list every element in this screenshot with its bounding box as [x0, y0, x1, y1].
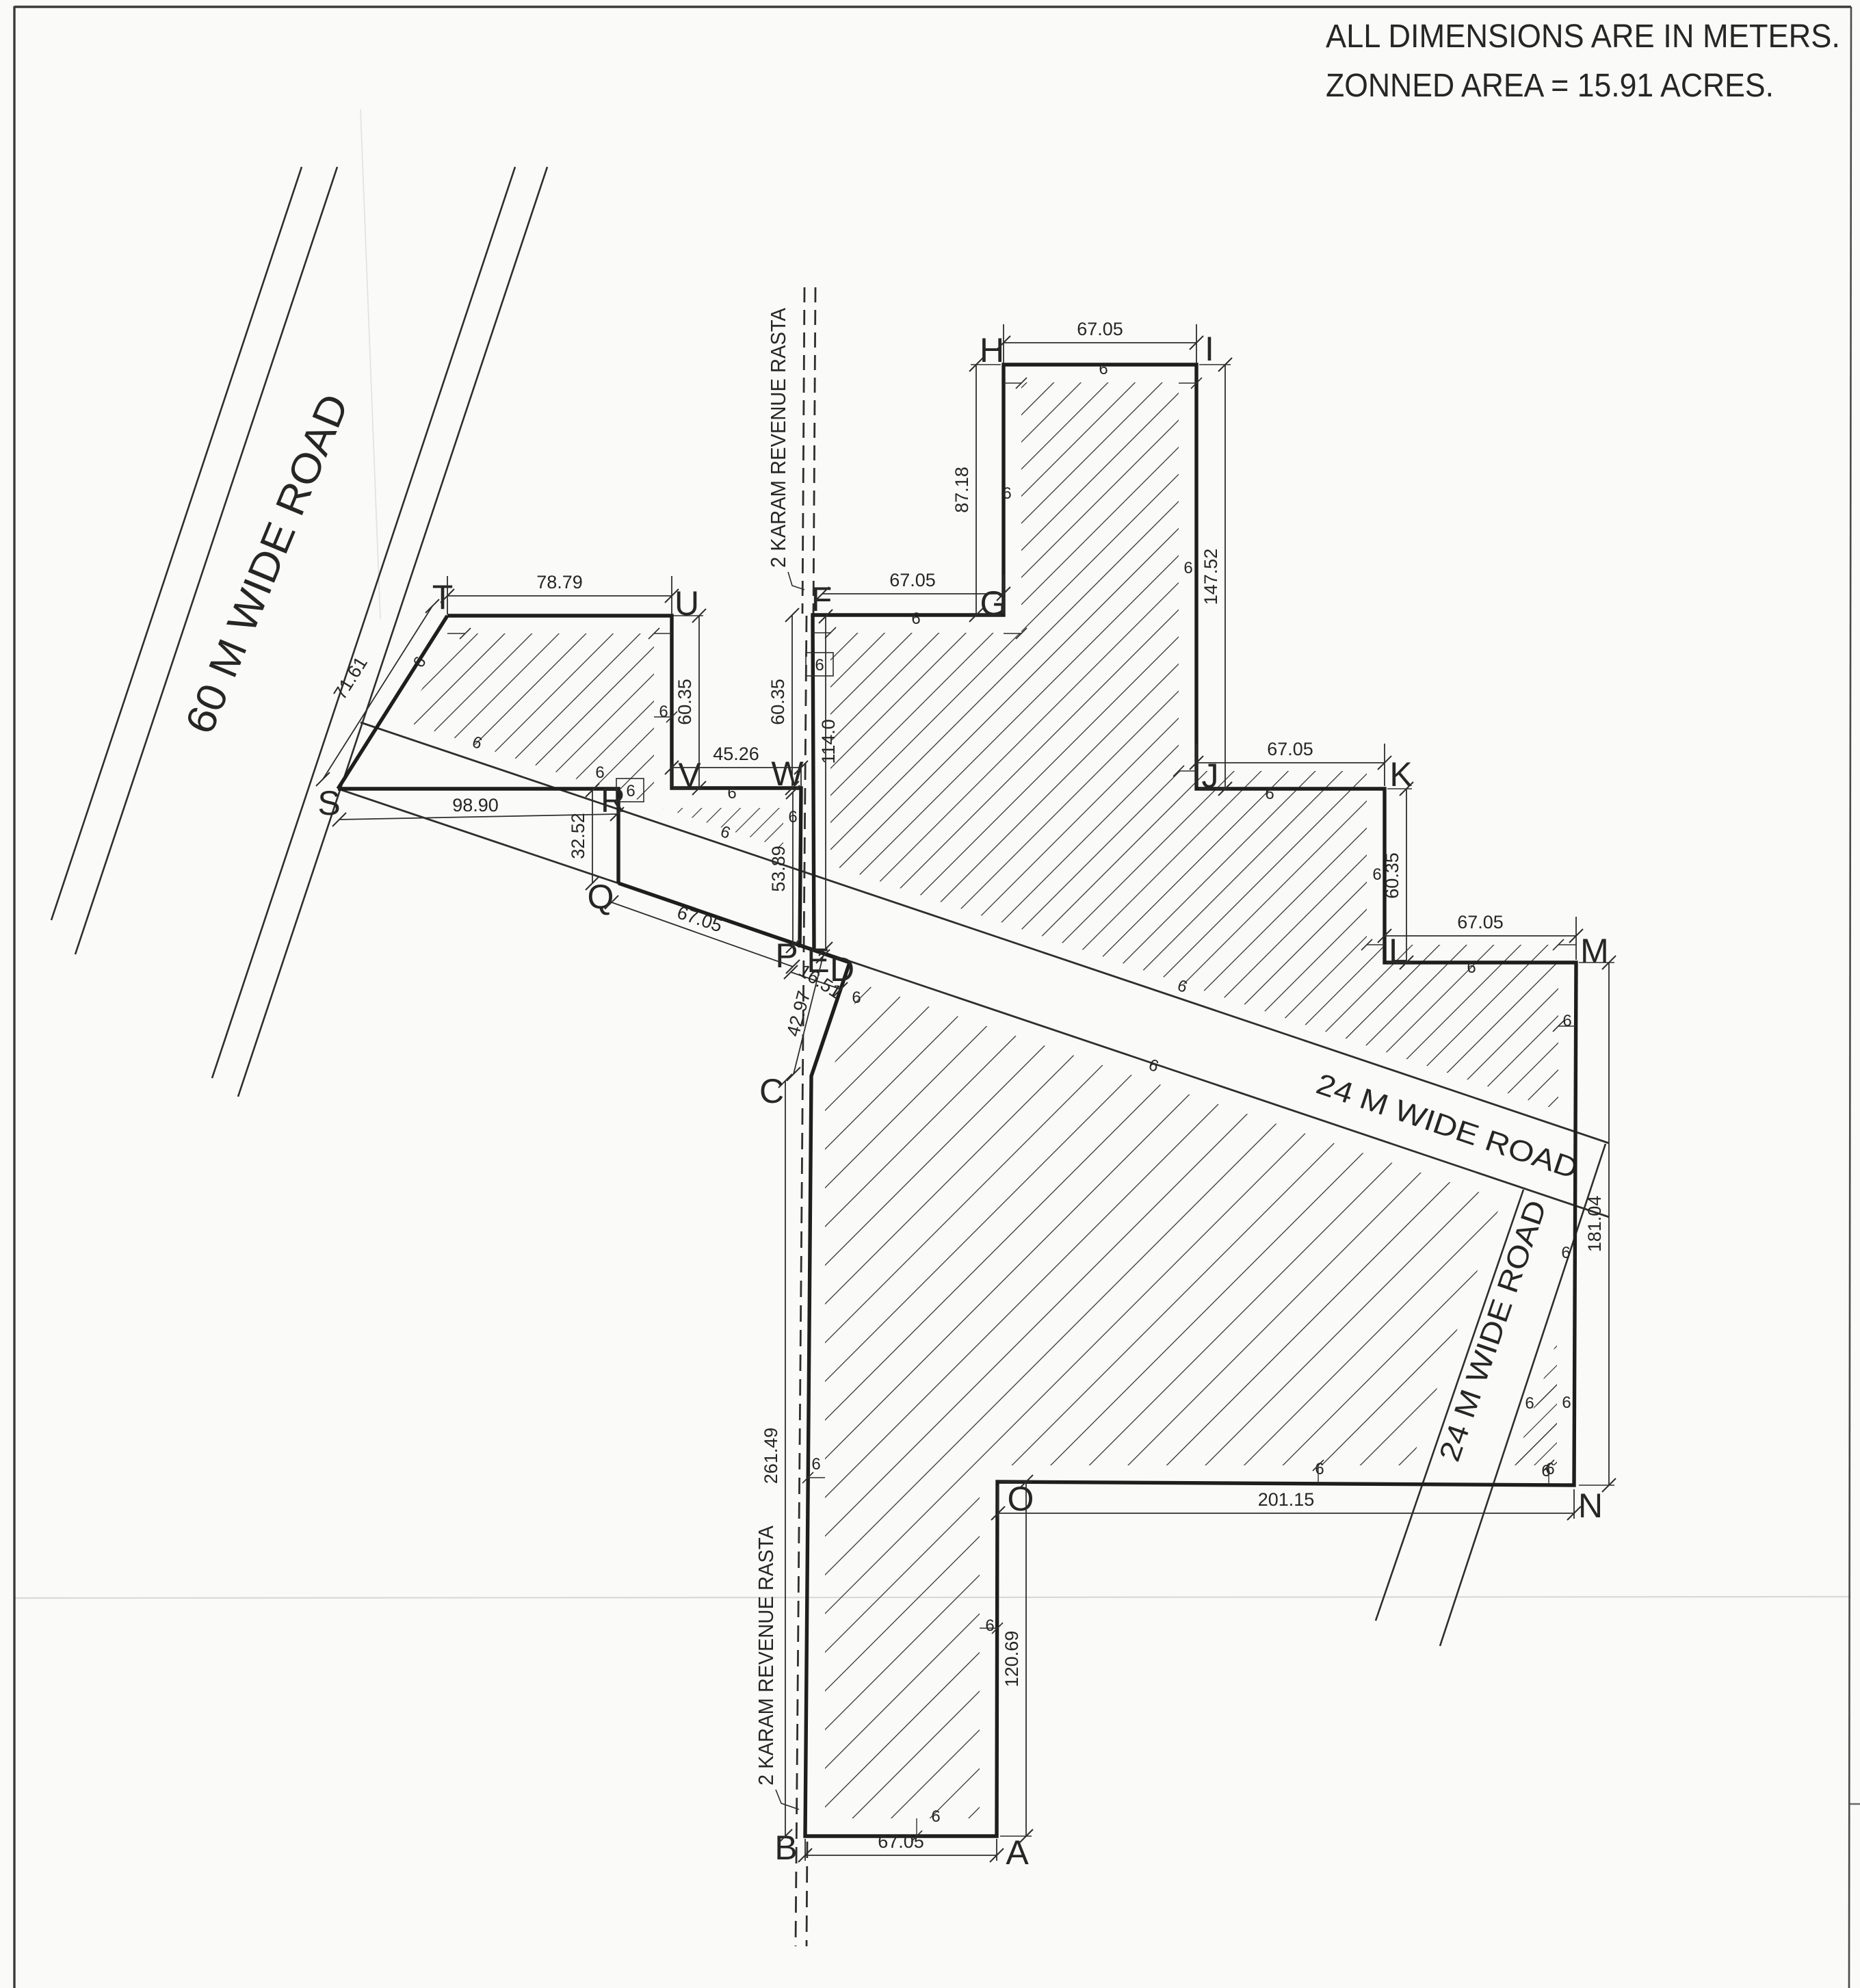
- svg-text:60.35: 60.35: [1382, 852, 1402, 899]
- svg-text:N: N: [1578, 1487, 1603, 1525]
- svg-text:T: T: [432, 578, 454, 616]
- svg-text:201.15: 201.15: [1258, 1489, 1315, 1510]
- svg-text:O: O: [1008, 1480, 1034, 1518]
- svg-text:6: 6: [1467, 958, 1476, 977]
- svg-text:6: 6: [1545, 1460, 1554, 1478]
- svg-text:I: I: [1205, 330, 1214, 368]
- svg-text:6: 6: [815, 656, 824, 675]
- svg-text:67.05: 67.05: [889, 570, 936, 590]
- svg-text:6: 6: [931, 1807, 940, 1826]
- svg-text:6: 6: [1099, 360, 1108, 378]
- svg-text:6: 6: [852, 989, 861, 1007]
- svg-text:A: A: [1006, 1833, 1029, 1872]
- svg-text:6: 6: [1562, 1394, 1571, 1412]
- svg-text:2 KARAM REVENUE RASTA: 2 KARAM REVENUE RASTA: [754, 1526, 778, 1786]
- svg-text:6: 6: [1525, 1394, 1534, 1413]
- svg-text:87.18: 87.18: [952, 467, 972, 513]
- svg-text:6: 6: [1315, 1460, 1324, 1478]
- svg-text:261.49: 261.49: [761, 1428, 781, 1485]
- svg-text:32.52: 32.52: [568, 813, 588, 859]
- svg-text:67.05: 67.05: [1077, 319, 1123, 339]
- svg-text:6: 6: [1372, 865, 1381, 884]
- svg-text:G: G: [980, 584, 1007, 623]
- svg-text:K: K: [1389, 755, 1412, 794]
- svg-text:W: W: [771, 755, 804, 793]
- svg-text:6: 6: [1561, 1244, 1570, 1262]
- svg-text:B: B: [774, 1829, 797, 1867]
- svg-text:S: S: [317, 784, 340, 822]
- svg-text:147.52: 147.52: [1201, 549, 1221, 605]
- svg-text:120.69: 120.69: [1001, 1631, 1022, 1688]
- svg-text:6: 6: [727, 784, 736, 802]
- svg-text:C: C: [759, 1072, 784, 1110]
- svg-text:6: 6: [1002, 484, 1011, 503]
- svg-text:45.26: 45.26: [713, 744, 759, 764]
- svg-text:78.79: 78.79: [536, 572, 583, 592]
- svg-text:H: H: [980, 331, 1004, 369]
- svg-text:6: 6: [1183, 559, 1192, 577]
- svg-text:M: M: [1580, 932, 1609, 970]
- svg-text:53.89: 53.89: [768, 846, 789, 892]
- svg-text:ALL DIMENSIONS ARE IN METERS.: ALL DIMENSIONS ARE IN METERS.: [1326, 18, 1840, 55]
- svg-text:98.90: 98.90: [452, 795, 499, 815]
- svg-text:60.35: 60.35: [674, 679, 695, 725]
- svg-text:181.04: 181.04: [1584, 1196, 1605, 1253]
- svg-text:6: 6: [911, 610, 920, 628]
- svg-text:60.35: 60.35: [768, 679, 788, 725]
- svg-text:6: 6: [1265, 785, 1274, 803]
- svg-text:67.05: 67.05: [1267, 739, 1313, 759]
- svg-text:2 KARAM REVENUE RASTA: 2 KARAM REVENUE RASTA: [766, 308, 790, 568]
- svg-text:6: 6: [811, 1455, 820, 1474]
- svg-text:6: 6: [595, 763, 604, 782]
- svg-text:67.05: 67.05: [1457, 912, 1504, 932]
- svg-text:6: 6: [659, 703, 668, 721]
- svg-text:114.0: 114.0: [818, 719, 839, 764]
- svg-text:6: 6: [626, 782, 635, 800]
- svg-text:ZONNED AREA = 15.91 ACRES.: ZONNED AREA = 15.91 ACRES.: [1326, 68, 1774, 104]
- svg-text:6: 6: [788, 808, 797, 826]
